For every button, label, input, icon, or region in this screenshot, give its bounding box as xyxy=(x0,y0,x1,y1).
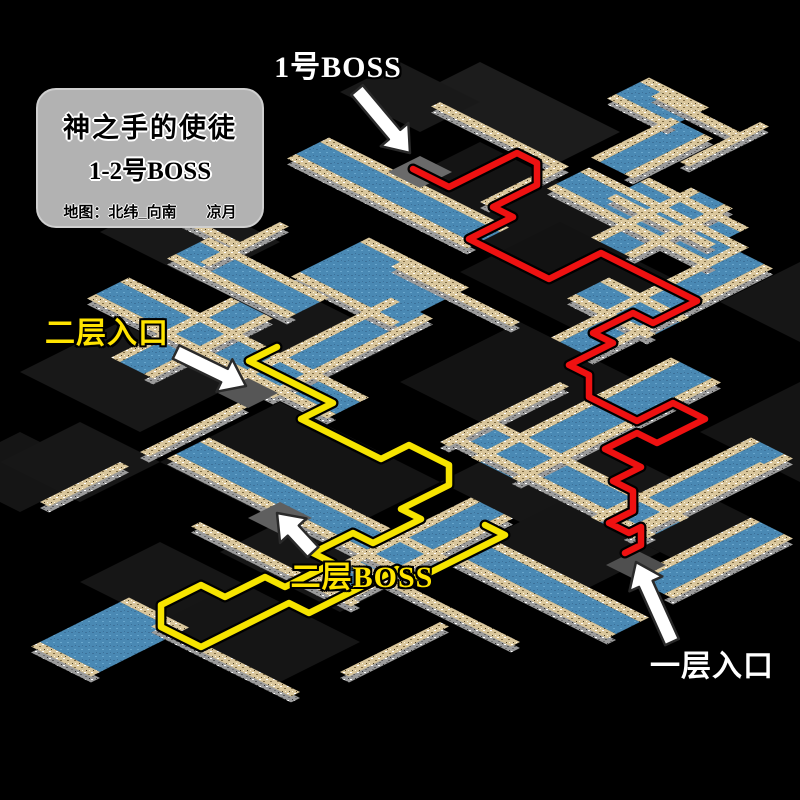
label-entrance2: 二层入口 xyxy=(45,308,169,352)
label-entrance1: 一层入口 xyxy=(650,641,774,685)
map-subtitle: 1-2号BOSS xyxy=(38,151,262,187)
label-boss2: 二层BOSS xyxy=(291,552,434,596)
map-credit: 地图：北纬_向南 凉月 xyxy=(38,201,262,222)
map-title: 神之手的使徒 xyxy=(38,106,262,145)
label-boss1: 1号BOSS xyxy=(274,42,402,86)
map-screenshot: 1号BOSS 二层入口 二层BOSS 一层入口 神之手的使徒 1-2号BOSS … xyxy=(0,0,800,800)
map-info-box: 神之手的使徒 1-2号BOSS 地图：北纬_向南 凉月 xyxy=(36,88,264,228)
